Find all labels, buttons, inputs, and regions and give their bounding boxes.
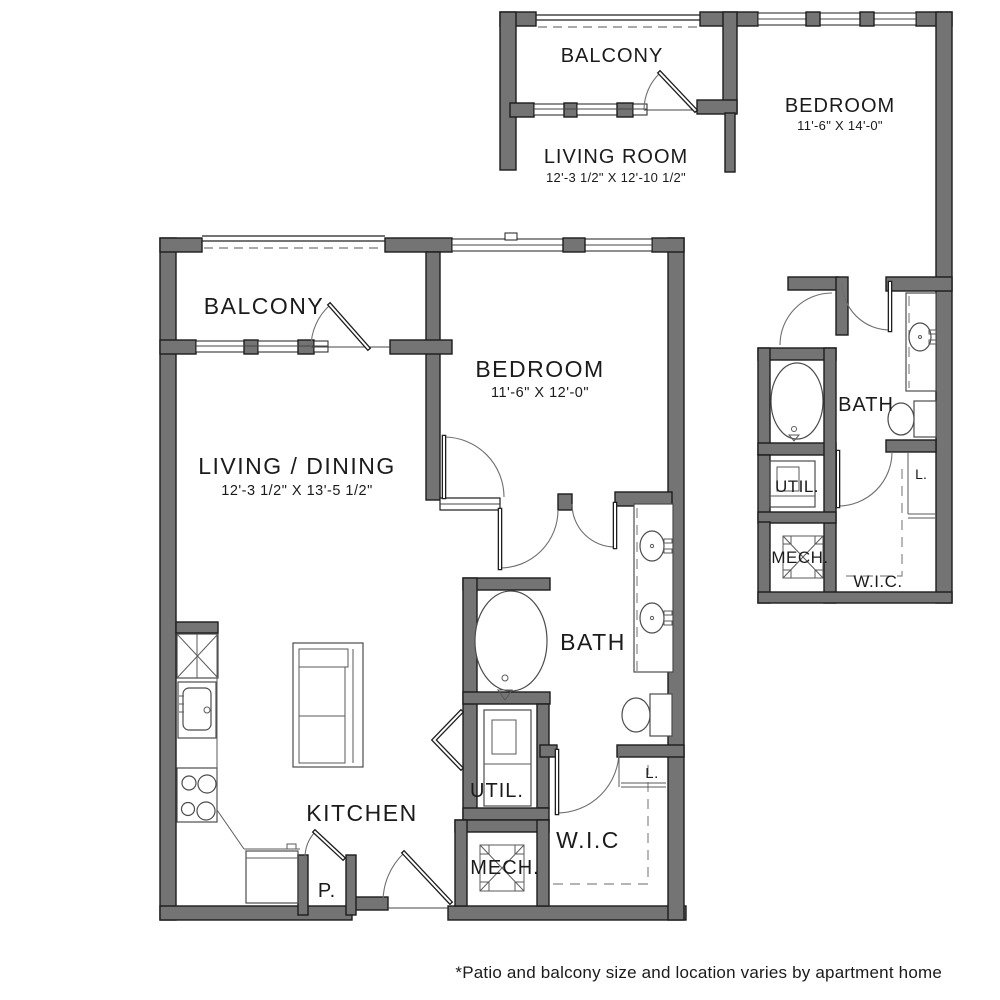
room-label-living: LIVING / DINING	[198, 453, 396, 479]
alt-room-label-wic: W.I.C.	[853, 572, 902, 591]
alt-bathtub-fixture	[771, 363, 823, 441]
entry-door	[383, 853, 450, 908]
balcony-window-wall	[160, 340, 452, 354]
footnote-text: *Patio and balcony size and location var…	[455, 963, 942, 982]
alt-wic-shelving	[846, 464, 902, 576]
alt-balcony-window-wall	[510, 103, 697, 117]
util-bifold-door	[434, 712, 461, 768]
kitchen-sink-fixture	[178, 682, 216, 738]
wic-shelving	[553, 760, 648, 884]
alternate-unit-plan: BALCONY LIVING ROOM 12'-3 1/2" X 12'-10 …	[500, 12, 952, 603]
alt-bedroom-door	[842, 283, 890, 330]
bathtub-fixture	[475, 591, 547, 700]
vanity-sinks-fixture	[634, 504, 673, 672]
room-dims-bedroom: 11'-6" X 12'-0"	[491, 385, 589, 401]
stove-fixture	[177, 768, 217, 822]
balcony-railing	[202, 236, 385, 248]
floor-plan-canvas: BALCONY BEDROOM 11'-6" X 12'-0" LIVING /…	[0, 0, 1000, 1000]
alt-hall-door	[780, 293, 832, 345]
alt-room-label-util: UTIL.	[775, 477, 819, 496]
alt-vanity-sink-fixture	[906, 293, 936, 391]
room-label-bath: BATH	[560, 629, 626, 655]
main-unit-plan: BALCONY BEDROOM 11'-6" X 12'-0" LIVING /…	[160, 233, 686, 920]
alt-bedroom-window	[758, 12, 916, 26]
alt-room-label-living: LIVING ROOM	[544, 146, 688, 168]
toilet-fixture	[622, 694, 672, 736]
refrigerator-fixture	[177, 634, 218, 678]
room-label-util: UTIL.	[470, 780, 524, 802]
alt-room-dims-living: 12'-3 1/2" X 12'-10 1/2"	[546, 170, 686, 185]
hall-door	[444, 437, 504, 497]
alt-wic-door	[838, 452, 892, 506]
bedroom-door	[572, 504, 615, 547]
room-label-bedroom: BEDROOM	[475, 356, 604, 382]
alt-linen-shelving	[908, 452, 936, 518]
room-label-balcony: BALCONY	[204, 293, 324, 319]
room-dims-living: 12'-3 1/2" X 13'-5 1/2"	[221, 483, 372, 499]
alt-room-label-bath: BATH	[838, 394, 894, 416]
alt-toilet-fixture	[888, 401, 936, 437]
alt-room-label-linen: L.	[915, 466, 927, 482]
pantry-door	[305, 832, 343, 858]
alt-room-dims-bedroom: 11'-6" X 14'-0"	[797, 118, 883, 133]
room-label-linen: L.	[645, 765, 659, 782]
room-label-kitchen: KITCHEN	[306, 800, 417, 826]
room-label-mech: MECH.	[470, 857, 539, 879]
alt-room-label-mech: MECH.	[771, 548, 828, 567]
wic-door	[557, 751, 619, 813]
room-label-wic: W.I.C	[556, 827, 620, 853]
kitchen-island-fixture	[293, 643, 363, 767]
alt-room-label-bedroom: BEDROOM	[785, 95, 895, 117]
kitchen-counter	[217, 634, 300, 849]
linen-shelving	[619, 757, 666, 787]
bath-door	[500, 510, 558, 568]
alt-balcony-door	[644, 73, 695, 110]
dishwasher-fixture	[246, 844, 298, 903]
alt-room-label-balcony: BALCONY	[561, 45, 664, 67]
bedroom-window	[452, 233, 652, 252]
alt-balcony-railing	[536, 15, 700, 27]
room-label-pantry: P.	[318, 880, 336, 902]
